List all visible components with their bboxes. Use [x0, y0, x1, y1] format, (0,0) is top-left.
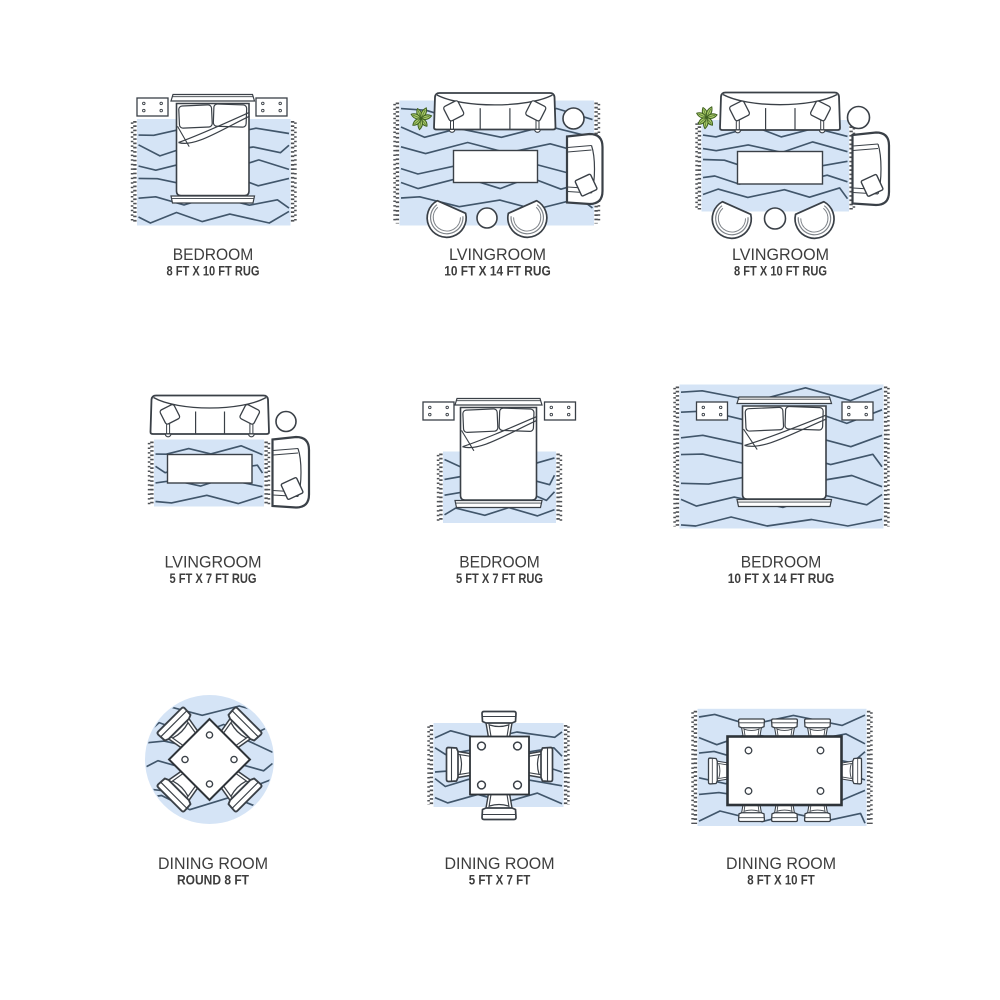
- svg-text:BEDROOM: BEDROOM: [173, 246, 254, 264]
- svg-text:5 FT X 7 FT RUG: 5 FT X 7 FT RUG: [170, 571, 257, 586]
- svg-text:ROUND 8 FT: ROUND 8 FT: [177, 872, 250, 887]
- svg-text:LVINGROOM: LVINGROOM: [165, 554, 262, 572]
- svg-text:BEDROOM: BEDROOM: [741, 554, 822, 572]
- svg-text:5 FT X 7 FT RUG: 5 FT X 7 FT RUG: [456, 571, 543, 586]
- svg-text:DINING ROOM: DINING ROOM: [158, 855, 268, 873]
- svg-text:10 FT X 14 FT RUG: 10 FT X 14 FT RUG: [728, 571, 835, 586]
- svg-text:8 FT X 10 FT: 8 FT X 10 FT: [747, 872, 815, 887]
- svg-text:LVINGROOM: LVINGROOM: [732, 246, 829, 264]
- svg-text:BEDROOM: BEDROOM: [459, 554, 540, 572]
- svg-text:10 FT X 14 FT RUG: 10 FT X 14 FT RUG: [444, 263, 551, 278]
- svg-text:LVINGROOM: LVINGROOM: [449, 246, 546, 264]
- svg-text:8 FT X 10 FT RUG: 8 FT X 10 FT RUG: [167, 263, 260, 278]
- svg-text:8 FT X 10 FT RUG: 8 FT X 10 FT RUG: [734, 263, 827, 278]
- svg-text:DINING ROOM: DINING ROOM: [726, 855, 836, 873]
- svg-text:DINING ROOM: DINING ROOM: [445, 855, 555, 873]
- svg-text:5 FT X 7 FT: 5 FT X 7 FT: [469, 872, 531, 887]
